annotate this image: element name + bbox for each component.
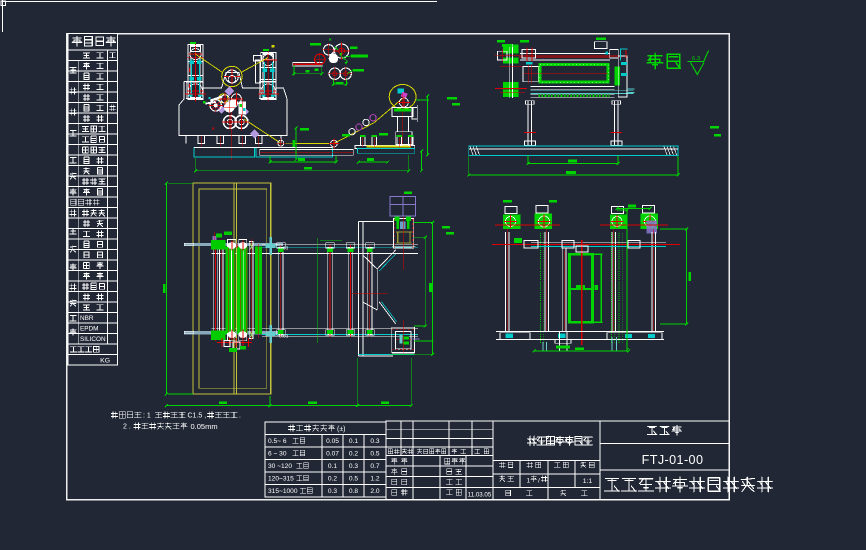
svg-text:11.03.05: 11.03.05 [468,492,492,499]
svg-text:NBR: NBR [80,315,94,322]
svg-text:0.1: 0.1 [349,438,358,445]
svg-text:0.7: 0.7 [370,463,379,470]
svg-text:0.3: 0.3 [328,488,337,495]
svg-text:2.0: 2.0 [370,488,379,495]
svg-text:0.2: 0.2 [349,451,358,458]
svg-text:315~1000: 315~1000 [268,488,298,495]
svg-text:EPDM: EPDM [80,326,98,333]
svg-text:0.5: 0.5 [370,451,379,458]
svg-text:0.2: 0.2 [328,476,337,483]
svg-text:30 ~120: 30 ~120 [268,463,292,470]
svg-text:2 .: 2 . [123,424,131,431]
svg-text:SILICON: SILICON [80,336,106,343]
svg-text:6 ~ 30: 6 ~ 30 [268,451,287,458]
svg-text:FTJ-01-00: FTJ-01-00 [642,453,704,467]
svg-text:0.3: 0.3 [349,463,358,470]
svg-text:1.2: 1.2 [370,476,379,483]
svg-text:/: / [538,478,540,485]
svg-text:0.5~ 6: 0.5~ 6 [268,438,287,445]
svg-text:0.3: 0.3 [370,438,379,445]
svg-text:0.5: 0.5 [349,476,358,483]
svg-text:C1.5 ,: C1.5 , [188,413,207,420]
svg-text:120~315: 120~315 [268,476,294,483]
svg-text:0.8: 0.8 [349,488,358,495]
svg-text:0.07: 0.07 [326,451,339,458]
svg-text:(±): (±) [337,426,346,433]
svg-text:0.1: 0.1 [328,463,337,470]
svg-text:0.05mm: 0.05mm [191,422,218,431]
svg-text:: 1: : 1 [143,413,151,420]
svg-text:1:1: 1:1 [583,478,593,485]
svg-text:KG: KG [100,357,110,364]
svg-text:1: 1 [527,478,531,485]
svg-text:0.05: 0.05 [326,438,339,445]
svg-text:.: . [239,413,241,420]
